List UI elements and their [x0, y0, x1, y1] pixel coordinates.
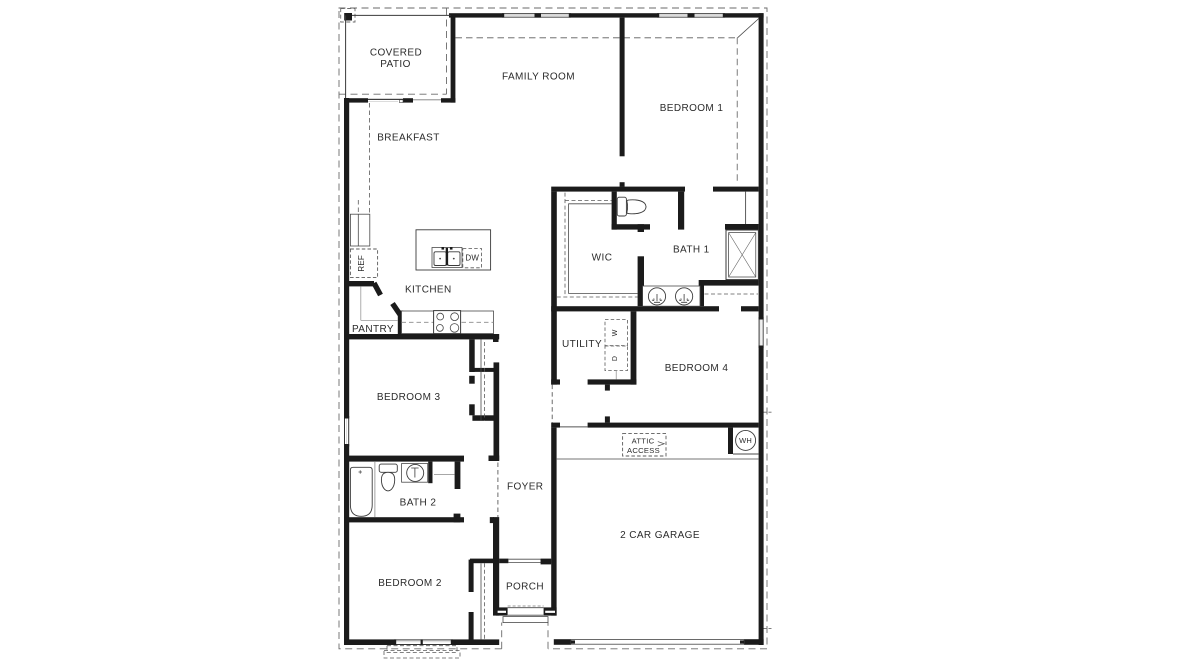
svg-text:BEDROOM 4: BEDROOM 4 — [665, 363, 729, 374]
svg-text:2 CAR GARAGE: 2 CAR GARAGE — [620, 530, 700, 541]
svg-text:COVERED: COVERED — [370, 48, 422, 59]
svg-text:BREAKFAST: BREAKFAST — [377, 133, 440, 144]
svg-text:BEDROOM 3: BEDROOM 3 — [377, 392, 441, 403]
svg-text:D: D — [612, 356, 619, 361]
svg-text:PORCH: PORCH — [506, 581, 544, 592]
svg-text:FAMILY ROOM: FAMILY ROOM — [502, 72, 575, 83]
svg-text:BEDROOM 2: BEDROOM 2 — [378, 578, 442, 589]
svg-text:WIC: WIC — [592, 253, 613, 264]
svg-text:BEDROOM 1: BEDROOM 1 — [660, 103, 724, 114]
svg-text:W: W — [612, 329, 619, 336]
svg-text:FOYER: FOYER — [507, 482, 543, 493]
svg-text:PANTRY: PANTRY — [352, 324, 394, 335]
svg-text:REF: REF — [357, 255, 366, 272]
svg-text:KITCHEN: KITCHEN — [405, 285, 452, 296]
svg-text:PATIO: PATIO — [380, 59, 411, 70]
svg-text:UTILITY: UTILITY — [562, 339, 602, 350]
svg-text:BATH 1: BATH 1 — [673, 245, 710, 256]
svg-text:DW: DW — [465, 254, 479, 263]
svg-text:WH: WH — [739, 436, 752, 445]
svg-text:ACCESS: ACCESS — [627, 446, 660, 455]
svg-text:ATTIC: ATTIC — [632, 437, 655, 446]
svg-text:BATH 2: BATH 2 — [400, 497, 437, 508]
